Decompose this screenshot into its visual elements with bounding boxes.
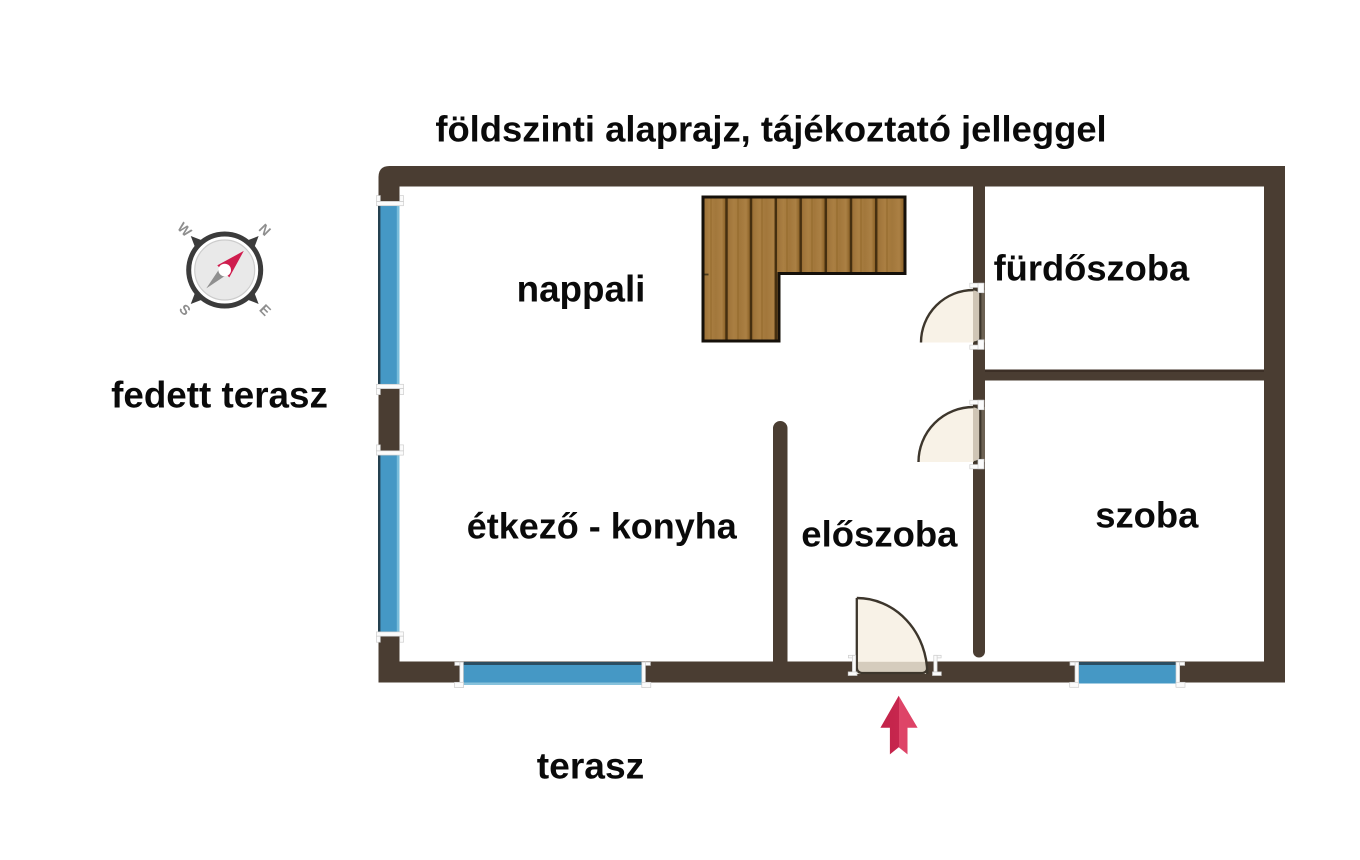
svg-text:fedett terasz: fedett terasz	[111, 375, 328, 416]
svg-text:szoba: szoba	[1095, 495, 1199, 536]
svg-text:S: S	[176, 301, 194, 319]
svg-text:étkező - konyha: étkező - konyha	[467, 506, 738, 547]
svg-text:nappali: nappali	[517, 269, 646, 310]
svg-text:E: E	[256, 301, 274, 319]
svg-text:fürdőszoba: fürdőszoba	[994, 247, 1190, 288]
svg-text:előszoba: előszoba	[801, 513, 958, 554]
svg-text:terasz: terasz	[537, 745, 645, 787]
svg-text:földszinti alaprajz, tájékozta: földszinti alaprajz, tájékoztató jellegg…	[435, 109, 1106, 150]
